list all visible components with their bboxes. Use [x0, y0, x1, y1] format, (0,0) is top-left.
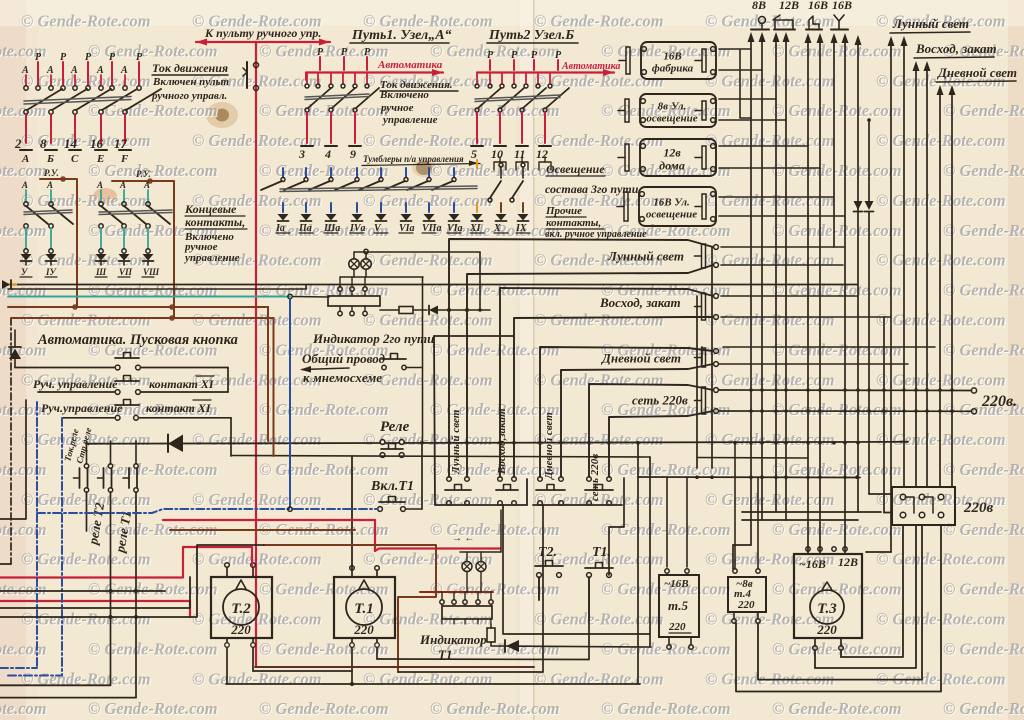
svg-text:220: 220	[353, 622, 374, 637]
svg-text:16В Ул.: 16В Ул.	[653, 197, 690, 209]
svg-text:Реле: Реле	[380, 419, 410, 435]
svg-text:IX: IX	[515, 223, 527, 234]
svg-text:сеть 220в: сеть 220в	[632, 393, 688, 408]
svg-text:контакты,: контакты,	[546, 217, 601, 229]
svg-text:12В: 12В	[838, 555, 858, 569]
svg-text:Индикатор: Индикатор	[419, 632, 487, 647]
svg-text:A: A	[21, 180, 28, 190]
svg-text:Р.У.: Р.У.	[136, 169, 151, 179]
svg-text:X: X	[493, 223, 501, 234]
svg-text:220: 220	[816, 622, 837, 637]
svg-text:Автоматика. Пусковая кнопка: Автоматика. Пусковая кнопка	[37, 332, 238, 348]
svg-text:8В: 8В	[752, 0, 766, 12]
svg-text:Б: Б	[46, 153, 54, 165]
svg-text:XI: XI	[469, 223, 482, 234]
svg-text:дома: дома	[659, 159, 685, 173]
svg-text:Т.3: Т.3	[817, 601, 837, 617]
svg-text:A: A	[96, 65, 104, 76]
svg-text:Включено: Включено	[379, 89, 429, 101]
svg-text:контакт XI: контакт XI	[149, 377, 215, 391]
svg-text:Лунный свет: Лунный свет	[607, 249, 684, 264]
svg-text:~16В: ~16В	[664, 578, 689, 590]
svg-text:12в: 12в	[663, 146, 681, 160]
svg-text:11: 11	[514, 147, 525, 161]
svg-text:220: 220	[230, 622, 251, 637]
svg-text:16В: 16В	[808, 0, 828, 12]
svg-text:VП: VП	[119, 267, 133, 277]
svg-text:VIа: VIа	[399, 223, 415, 234]
svg-text:12В: 12В	[779, 0, 799, 12]
svg-text:A: A	[96, 180, 103, 190]
svg-text:Па: Па	[298, 223, 312, 234]
svg-text:C: C	[71, 153, 79, 165]
svg-text:Освещение: Освещение	[546, 162, 605, 176]
svg-text:~16В: ~16В	[799, 557, 826, 571]
svg-text:220в: 220в	[963, 500, 994, 516]
svg-text:10: 10	[491, 147, 503, 161]
svg-text:IVа: IVа	[349, 223, 366, 234]
svg-text:A: A	[21, 65, 29, 76]
svg-text:A: A	[21, 153, 29, 165]
svg-text:4: 4	[324, 147, 331, 161]
svg-text:Р.У.: Р.У.	[44, 168, 59, 178]
svg-text:2: 2	[14, 136, 22, 151]
svg-text:Автоматика: Автоматика	[377, 59, 443, 71]
svg-text:Т.1: Т.1	[354, 601, 373, 617]
svg-text:220: 220	[668, 621, 686, 633]
svg-text:Индикатор 2го пути: Индикатор 2го пути	[312, 331, 434, 346]
svg-text:Концевые: Концевые	[184, 202, 237, 216]
svg-text:Лунный свет: Лунный свет	[892, 16, 969, 31]
svg-text:освещение: освещение	[646, 113, 697, 125]
svg-text:F: F	[120, 153, 129, 165]
svg-text:220в.: 220в.	[981, 393, 1017, 410]
svg-text:VIа: VIа	[447, 223, 463, 234]
svg-text:A: A	[143, 180, 150, 190]
svg-text:Автоматика: Автоматика	[561, 61, 620, 72]
svg-text:ручное: ручное	[380, 102, 414, 114]
svg-text:контакт XI: контакт XI	[146, 401, 212, 415]
svg-text:Т2.: Т2.	[538, 545, 557, 560]
svg-text:A: A	[70, 65, 78, 76]
svg-text:E: E	[96, 153, 104, 165]
svg-text:к мнемосхеме: к мнемосхеме	[303, 370, 382, 385]
svg-text:VПа: VПа	[422, 223, 441, 234]
svg-text:16В: 16В	[663, 51, 681, 63]
svg-text:Ток движения: Ток движения	[152, 61, 228, 75]
svg-text:Восход, закат: Восход, закат	[915, 41, 997, 56]
svg-text:Т.2: Т.2	[231, 601, 251, 617]
svg-text:Путь1. Узел„А“: Путь1. Узел„А“	[351, 28, 452, 43]
svg-text:т.5: т.5	[668, 598, 689, 613]
svg-text:Прочие: Прочие	[545, 205, 582, 217]
svg-text:вкл. ручное управление: вкл. ручное управление	[545, 229, 647, 240]
svg-text:VШ: VШ	[143, 267, 160, 277]
svg-text:8: 8	[40, 136, 47, 151]
svg-text:Тумблеры п/а управления: Тумблеры п/а управления	[363, 154, 464, 164]
svg-text:8в Ул.: 8в Ул.	[658, 101, 687, 113]
svg-text:Дневной свет: Дневной свет	[937, 65, 1017, 80]
svg-text:Дневной свет: Дневной свет	[601, 351, 681, 366]
svg-text:16В: 16В	[832, 0, 852, 12]
svg-text:IУ: IУ	[45, 267, 58, 277]
svg-text:→ ←: → ←	[452, 533, 475, 544]
svg-text:фабрика: фабрика	[652, 63, 694, 75]
svg-text:Ша: Ша	[323, 223, 340, 234]
svg-text:Руч.управление: Руч.управление	[41, 401, 123, 415]
svg-text:9: 9	[350, 147, 356, 161]
svg-text:Руч. управление: Руч. управление	[33, 377, 118, 391]
svg-text:управление: управление	[381, 114, 438, 126]
svg-text:Общий провод: Общий провод	[302, 351, 386, 366]
svg-text:Восход,закат: Восход,закат	[496, 408, 508, 475]
svg-text:ручного управл.: ручного управл.	[151, 90, 227, 102]
svg-text:16: 16	[90, 136, 104, 151]
svg-text:5: 5	[471, 147, 477, 161]
svg-text:Восход, закат: Восход, закат	[599, 295, 681, 310]
svg-text:220: 220	[737, 599, 755, 611]
svg-text:A: A	[46, 180, 53, 190]
svg-text:Ш: Ш	[95, 267, 107, 277]
svg-text:Путь2 Узел.Б: Путь2 Узел.Б	[488, 28, 574, 43]
svg-text:К пульту ручного упр.: К пульту ручного упр.	[204, 26, 321, 40]
svg-text:17: 17	[114, 136, 128, 151]
svg-text:14: 14	[64, 136, 78, 151]
svg-text:управление: управление	[183, 252, 240, 264]
svg-text:12: 12	[536, 147, 548, 161]
svg-text:A: A	[119, 180, 126, 190]
svg-text:Iа: Iа	[275, 223, 285, 234]
svg-text:Вкл.Т1: Вкл.Т1	[370, 479, 414, 494]
svg-text:A: A	[46, 65, 54, 76]
svg-text:контакты,: контакты,	[185, 215, 245, 229]
svg-text:3: 3	[298, 147, 305, 161]
svg-text:Включен пульт: Включен пульт	[152, 76, 230, 88]
svg-text:A: A	[120, 65, 128, 76]
svg-text:Дневной свет: Дневной свет	[543, 412, 555, 480]
svg-text:освещение: освещение	[646, 209, 697, 221]
